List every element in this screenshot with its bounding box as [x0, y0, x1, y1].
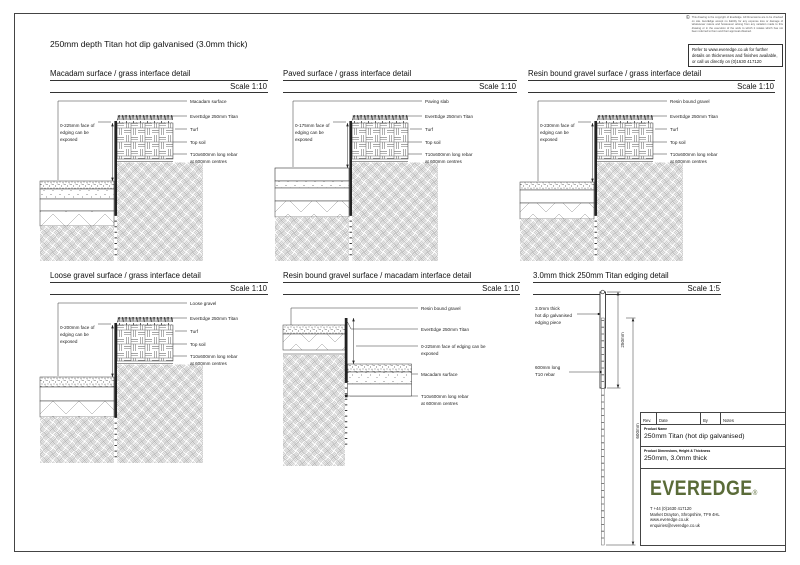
- label-turf: Turf: [425, 127, 434, 132]
- label-rebar-2: at 600mm centres: [425, 159, 462, 164]
- label-everedge: EverEdge 250mm Titan: [190, 316, 238, 321]
- edging-detail-drawing: 250mm 600mm 3.0mm thick hot dip galvanis…: [533, 288, 653, 552]
- label-edging-1: 3.0mm thick: [535, 306, 560, 311]
- panel-title: Macadam surface / grass interface detail: [50, 69, 268, 81]
- label-everedge: EverEdge 250mm Titan: [421, 327, 469, 332]
- resin-macadam-drawing: Resin bound gravel EverEdge 250mm Titan …: [283, 298, 520, 470]
- label-topsoil: Top soil: [670, 140, 686, 145]
- copyright-note: © This drawing is the copyright of EverE…: [686, 16, 783, 34]
- label-topsoil: Top soil: [190, 140, 206, 145]
- copyright-text: This drawing is the copyright of EverEdg…: [692, 16, 783, 34]
- label-rebar-2: T10 rebar: [535, 372, 555, 377]
- label-turf: Turf: [670, 127, 679, 132]
- everedge-logo: EVEREDGE: [650, 477, 753, 500]
- panel-scale: Scale 1:10: [50, 283, 268, 295]
- panel-macadam-grass: Macadam surface / grass interface detail…: [50, 69, 268, 93]
- title-block: Rev. Date By Notes Product Name 250mm Ti…: [640, 412, 786, 546]
- label-rebar-1: T10x600mm long rebar: [421, 394, 469, 399]
- revision-table: Rev. Date By Notes: [641, 413, 785, 425]
- label-rebar-2: at 600mm centres: [421, 401, 458, 406]
- label-everedge: EverEdge 250mm Titan: [670, 114, 718, 119]
- loose-gravel-grass-drawing: Loose gravel EverEdge 250mm Titan Turf T…: [40, 295, 268, 467]
- sheet-title: 250mm depth Titan hot dip galvanised (3.…: [50, 39, 248, 49]
- panel-loose-gravel-grass: Loose gravel surface / grass interface d…: [50, 271, 268, 295]
- paved-grass-drawing: Paving slab EverEdge 250mm Titan Turf To…: [275, 93, 503, 265]
- label-rebar-1: T10x600mm long rebar: [190, 152, 238, 157]
- label-exposed-2: edging can be: [60, 332, 89, 337]
- label-everedge: EverEdge 250mm Titan: [425, 114, 473, 119]
- label-surface: Paving slab: [425, 99, 449, 104]
- panel-resin-macadam: Resin bound gravel surface / macadam int…: [283, 271, 520, 295]
- label-exposed-3: exposed: [540, 137, 558, 142]
- label-surface: Loose gravel: [190, 301, 216, 306]
- panel-scale: Scale 1:10: [528, 81, 775, 93]
- panel-paved-grass: Paved surface / grass interface detail S…: [283, 69, 517, 93]
- logo-row: EVEREDGE®: [641, 469, 785, 500]
- label-exposed-1: 0-230mm face of: [540, 123, 575, 128]
- label-exposed-3: exposed: [60, 339, 78, 344]
- resin-grass-drawing: Resin bound gravel EverEdge 250mm Titan …: [520, 93, 748, 265]
- date-header: Date: [657, 413, 701, 424]
- label-exposed-2: edging can be: [295, 130, 324, 135]
- contact-details: T +44 (0)1630 417120 Market Drayton, Shr…: [641, 500, 785, 528]
- label-rebar-1: T10x600mm long rebar: [190, 354, 238, 359]
- label-exposed-1: 0-225mm face of: [60, 123, 95, 128]
- label-topsoil: Top soil: [425, 140, 441, 145]
- drawing-sheet: 250mm depth Titan hot dip galvanised (3.…: [0, 0, 800, 565]
- macadam-grass-drawing: Macadam surface EverEdge 250mm Titan Tur…: [40, 93, 268, 265]
- label-rebar-2: at 600mm centres: [670, 159, 707, 164]
- panel-title: Resin bound gravel surface / grass inter…: [528, 69, 775, 81]
- label-topsoil: Top soil: [190, 342, 206, 347]
- label-exposed-1: 0-225mm face of edging can be: [421, 344, 486, 349]
- panel-resin-grass: Resin bound gravel surface / grass inter…: [528, 69, 775, 93]
- panel-scale: Scale 1:10: [50, 81, 268, 93]
- registered-trademark-icon: ®: [753, 488, 758, 497]
- label-rebar-2: at 600mm centres: [190, 361, 227, 366]
- label-surface: Resin bound gravel: [421, 306, 461, 311]
- label-edging-2: hot dip galvanised: [535, 313, 572, 318]
- label-edging-3: edging piece: [535, 320, 561, 325]
- notes-header: Notes: [721, 413, 785, 424]
- label-exposed-2: exposed: [421, 351, 439, 356]
- dim-250mm: 250mm: [620, 332, 625, 347]
- panel-scale: Scale 1:10: [283, 81, 517, 93]
- panel-title: Loose gravel surface / grass interface d…: [50, 271, 268, 283]
- by-header: By: [701, 413, 721, 424]
- label-exposed-2: edging can be: [540, 130, 569, 135]
- panel-scale: Scale 1:10: [283, 283, 520, 295]
- label-rebar-1: T10x600mm long rebar: [670, 152, 718, 157]
- label-surface: Resin bound gravel: [670, 99, 710, 104]
- panel-title: Paved surface / grass interface detail: [283, 69, 517, 81]
- label-exposed-2: edging can be: [60, 130, 89, 135]
- copyright-icon: ©: [686, 16, 690, 34]
- panel-title: 3.0mm thick 250mm Titan edging detail: [533, 271, 721, 283]
- panel-title: Resin bound gravel surface / macadam int…: [283, 271, 520, 283]
- label-rebar-1: 600mm long: [535, 365, 561, 370]
- label-exposed-3: exposed: [60, 137, 78, 142]
- label-turf: Turf: [190, 127, 199, 132]
- label-everedge: EverEdge 250mm Titan: [190, 114, 238, 119]
- label-exposed-1: 0-200mm face of: [60, 325, 95, 330]
- refer-note-box: Refer to www.everedge.co.uk for further …: [688, 44, 783, 67]
- label-surface: Macadam surface: [190, 99, 227, 104]
- label-turf: Turf: [190, 329, 199, 334]
- label-exposed-3: exposed: [295, 137, 313, 142]
- contact-email: enquiries@everedge.co.uk: [650, 523, 785, 529]
- rev-header: Rev.: [641, 413, 657, 424]
- product-name-value: 250mm Titan (hot dip galvanised): [641, 431, 785, 447]
- product-dims-value: 250mm, 3.0mm thick: [641, 453, 785, 469]
- label-surface-2: Macadam surface: [421, 372, 458, 377]
- label-rebar-1: T10x600mm long rebar: [425, 152, 473, 157]
- label-rebar-2: at 600mm centres: [190, 159, 227, 164]
- label-exposed-1: 0-175mm face of: [295, 123, 330, 128]
